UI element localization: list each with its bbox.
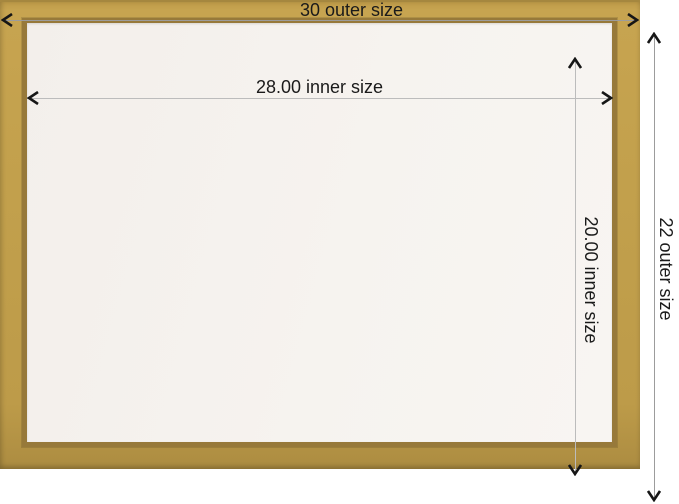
- inner-height-label: 20.00 inner size: [581, 200, 601, 360]
- picture-frame: [0, 0, 640, 469]
- arrow-left-icon: [1, 13, 13, 27]
- inner-width-label: 28.00 inner size: [27, 77, 612, 97]
- frame-size-diagram: 30 outer size 28.00 inner size 20.00 inn…: [0, 0, 679, 504]
- arrow-down-icon: [568, 464, 582, 476]
- arrow-up-icon: [568, 57, 582, 69]
- inner-height-dimension-line: [575, 58, 576, 475]
- outer-width-dimension-line: [2, 20, 638, 21]
- outer-width-label: 30 outer size: [12, 0, 679, 20]
- arrow-right-icon: [627, 13, 639, 27]
- outer-height-dimension-line: [654, 33, 655, 501]
- outer-height-label: 22 outer size: [656, 199, 676, 339]
- arrow-right-icon: [601, 91, 613, 105]
- arrow-down-icon: [647, 490, 661, 502]
- arrow-up-icon: [647, 32, 661, 44]
- arrow-left-icon: [27, 91, 39, 105]
- inner-width-dimension-line: [27, 98, 612, 99]
